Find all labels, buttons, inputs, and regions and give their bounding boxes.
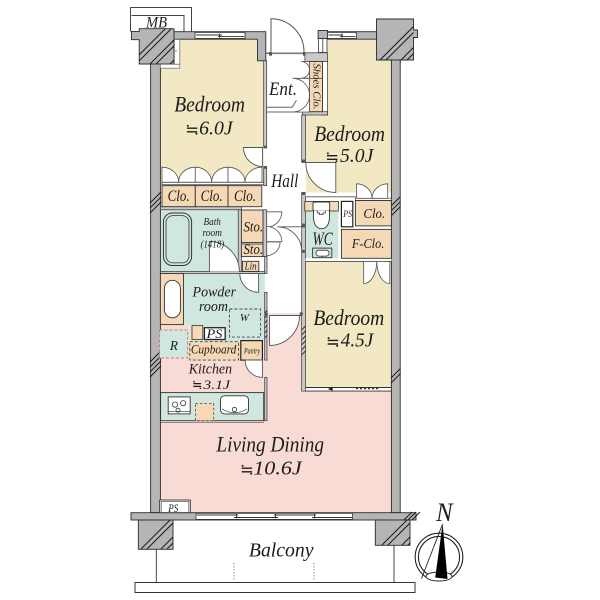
svg-text:Shoes Clo.: Shoes Clo. bbox=[310, 64, 321, 110]
svg-text:Living Dining: Living Dining bbox=[216, 431, 324, 456]
svg-text:3.1J: 3.1J bbox=[202, 378, 232, 392]
svg-text:Pantry: Pantry bbox=[243, 345, 260, 355]
svg-text:N: N bbox=[435, 498, 454, 527]
svg-text:(1418): (1418) bbox=[201, 239, 225, 250]
svg-text:F-Clo.: F-Clo. bbox=[351, 237, 384, 252]
svg-text:PS: PS bbox=[168, 501, 179, 515]
svg-text:4.5J: 4.5J bbox=[341, 331, 375, 352]
svg-text:Lin: Lin bbox=[244, 262, 257, 273]
svg-text:PS: PS bbox=[342, 210, 352, 220]
svg-text:Bedroom: Bedroom bbox=[174, 91, 245, 116]
svg-text:Clo.: Clo. bbox=[201, 188, 223, 205]
svg-text:Sto.: Sto. bbox=[244, 242, 264, 258]
svg-text:10.6J: 10.6J bbox=[253, 459, 303, 480]
svg-text:MB: MB bbox=[145, 15, 167, 32]
svg-text:Balcony: Balcony bbox=[249, 541, 314, 562]
svg-text:Hall: Hall bbox=[271, 171, 299, 192]
svg-text:Sto.: Sto. bbox=[244, 219, 264, 235]
svg-text:WC: WC bbox=[313, 230, 334, 250]
svg-text:Bedroom: Bedroom bbox=[313, 305, 384, 330]
svg-text:Clo.: Clo. bbox=[363, 207, 385, 222]
svg-text:R: R bbox=[169, 339, 178, 354]
svg-text:W: W bbox=[240, 312, 250, 324]
svg-text:PS: PS bbox=[205, 326, 223, 341]
svg-text:room: room bbox=[202, 228, 222, 239]
svg-text:Cupboard: Cupboard bbox=[191, 342, 237, 357]
svg-text:Clo.: Clo. bbox=[234, 188, 256, 205]
svg-text:Bath: Bath bbox=[204, 217, 221, 228]
svg-text:6.0J: 6.0J bbox=[199, 119, 234, 140]
svg-text:room: room bbox=[199, 299, 228, 315]
svg-text:Clo.: Clo. bbox=[168, 188, 190, 205]
svg-text:Kitchen: Kitchen bbox=[188, 361, 232, 377]
svg-text:5.0J: 5.0J bbox=[340, 146, 375, 167]
svg-text:Ent.: Ent. bbox=[268, 79, 297, 100]
svg-text:Bedroom: Bedroom bbox=[314, 121, 385, 146]
